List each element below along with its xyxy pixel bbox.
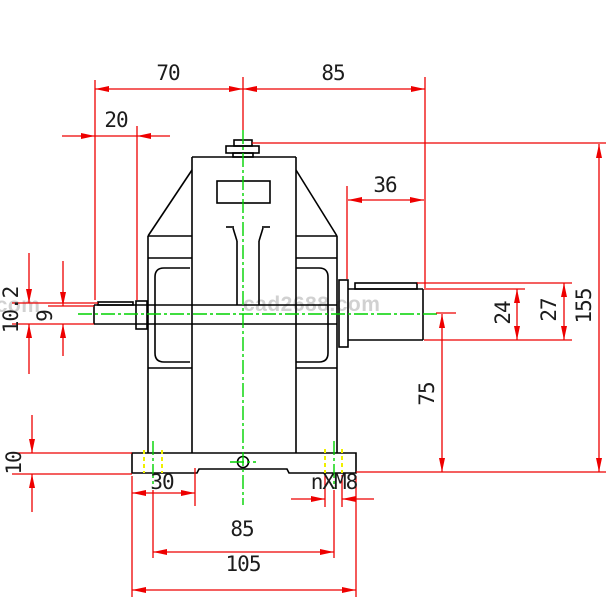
output-shaft-key	[355, 283, 417, 289]
dim-mounting-hole-callout: nXM8	[299, 471, 369, 493]
dim-input-shaft-extension: 20	[93, 109, 139, 131]
drawing-linework-svg	[0, 0, 610, 610]
dim-output-shaft-extension: 36	[362, 174, 408, 196]
dim-base-width: 105	[215, 553, 271, 575]
dim-input-shaft-diameter: 9	[34, 281, 56, 351]
left-cavity	[155, 268, 190, 362]
dim-top-right-span: 85	[308, 62, 358, 84]
dim-overall-height: 155	[573, 271, 595, 341]
dim-base-plate-thickness: 10	[3, 428, 25, 498]
dim-output-key-height: 27	[538, 275, 560, 345]
right-cavity	[296, 268, 328, 362]
dim-foot-width: 30	[139, 471, 185, 493]
input-shaft-key	[98, 302, 133, 305]
dim-hole-spacing: 85	[219, 518, 265, 540]
cad-drawing-canvas: cad2688.com cad2688.com	[0, 0, 610, 610]
dim-top-left-span: 70	[143, 62, 193, 84]
dim-input-key-height: 10.2	[0, 275, 22, 345]
dim-output-shaft-diameter: 24	[492, 278, 514, 348]
dim-shaft-center-height: 75	[416, 359, 438, 429]
